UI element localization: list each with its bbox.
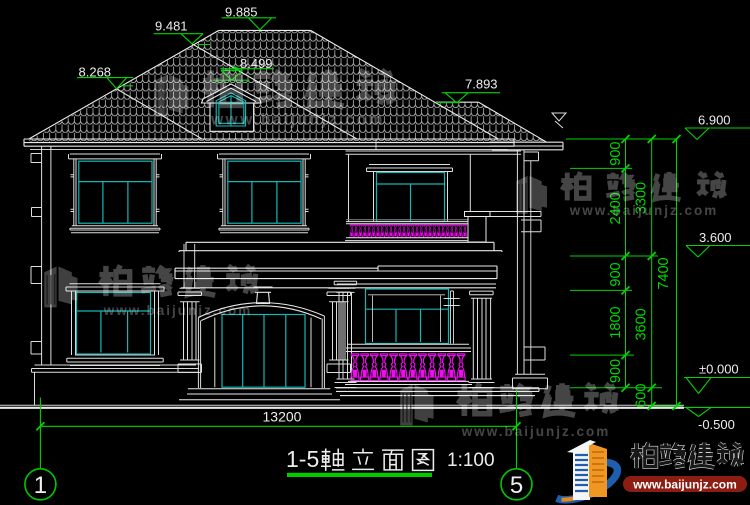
svg-text:9.481: 9.481 — [155, 19, 188, 34]
svg-text:www.baijunjz.com: www.baijunjz.com — [461, 424, 611, 439]
svg-text:-0.500: -0.500 — [698, 417, 735, 432]
svg-text:900: 900 — [608, 141, 624, 165]
svg-text:5: 5 — [510, 472, 523, 499]
svg-text:1-5: 1-5 — [286, 446, 319, 472]
svg-text:1:100: 1:100 — [447, 450, 495, 471]
svg-text:900: 900 — [608, 262, 624, 286]
svg-text:3600: 3600 — [634, 308, 650, 340]
svg-text:1: 1 — [34, 472, 47, 499]
svg-text:1800: 1800 — [608, 306, 624, 338]
svg-text:www.baijunjz.com: www.baijunjz.com — [103, 303, 253, 318]
svg-text:www.baijunjz.com: www.baijunjz.com — [569, 203, 719, 218]
svg-text:7400: 7400 — [656, 257, 672, 289]
svg-text:600: 600 — [633, 384, 649, 408]
svg-text:9.885: 9.885 — [225, 4, 258, 19]
svg-text:www.baijunjz.com: www.baijunjz.com — [632, 478, 737, 492]
svg-text:8.268: 8.268 — [79, 65, 112, 80]
svg-text:900: 900 — [608, 359, 624, 383]
svg-text:13200: 13200 — [263, 409, 302, 425]
svg-text:3.600: 3.600 — [699, 230, 732, 245]
svg-text:±0.000: ±0.000 — [699, 362, 739, 377]
svg-text:8.499: 8.499 — [240, 56, 273, 71]
svg-text:www.baijunjz.com: www.baijunjz.com — [210, 112, 385, 129]
svg-text:6.900: 6.900 — [698, 113, 731, 128]
svg-text:7.893: 7.893 — [465, 76, 498, 91]
